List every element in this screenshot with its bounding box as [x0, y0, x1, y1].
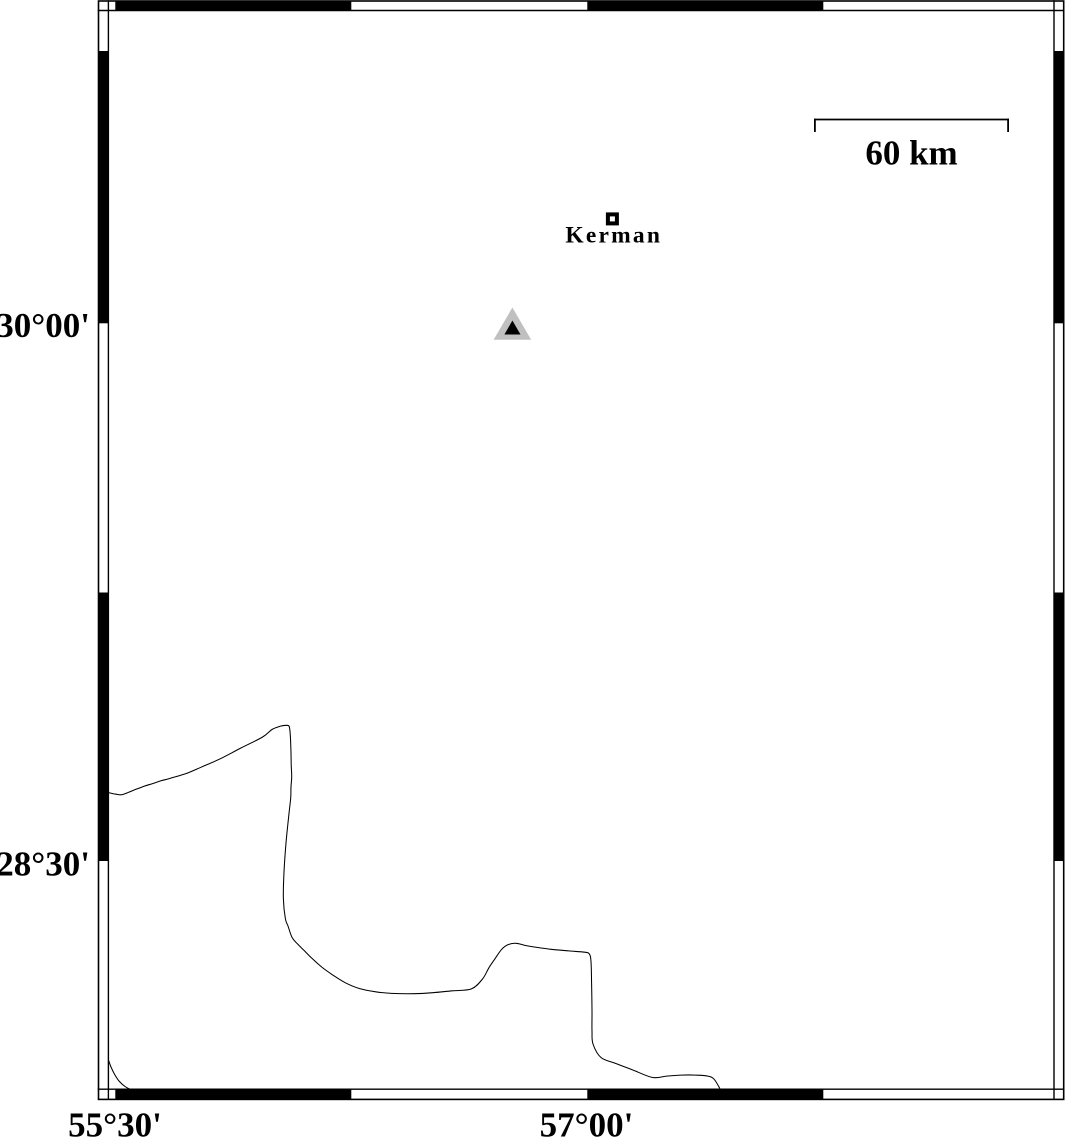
svg-text:30°00': 30°00': [0, 306, 90, 345]
svg-text:Kerman: Kerman: [565, 223, 662, 249]
svg-text:60 km: 60 km: [865, 134, 957, 173]
svg-text:57°00': 57°00': [540, 1106, 634, 1138]
svg-text:28°30': 28°30': [0, 845, 90, 884]
svg-text:55°30': 55°30': [68, 1106, 162, 1138]
